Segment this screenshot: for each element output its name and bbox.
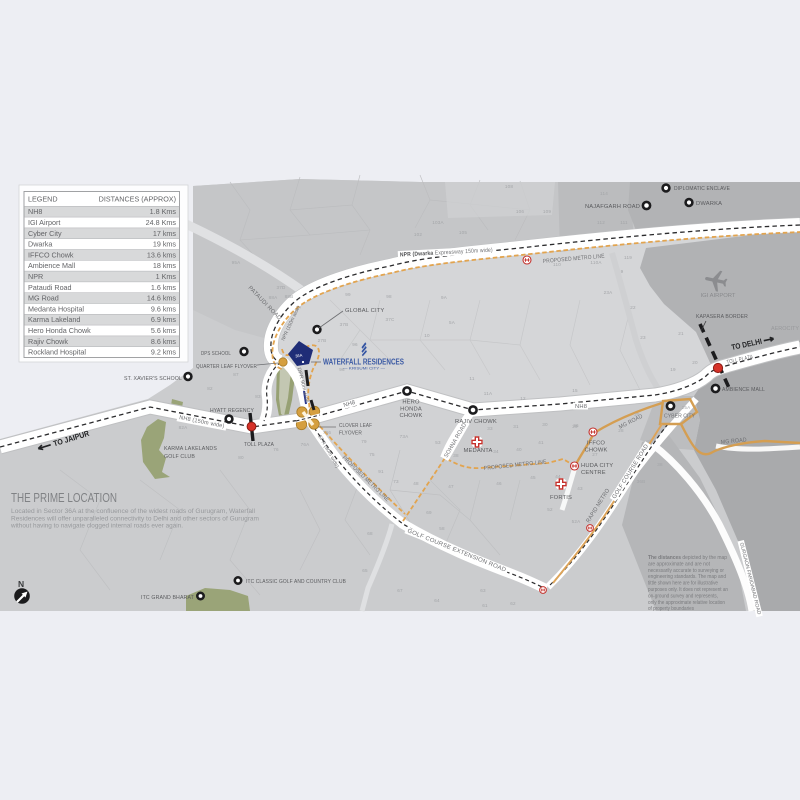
svg-text:N: N [18, 579, 24, 589]
svg-text:9.6 kms: 9.6 kms [151, 304, 177, 313]
svg-text:17 kms: 17 kms [153, 229, 177, 238]
svg-text:LEGEND: LEGEND [28, 195, 58, 204]
svg-text:DISTANCES (APPROX): DISTANCES (APPROX) [99, 195, 176, 204]
svg-text:110: 110 [553, 262, 561, 267]
svg-text:GOLF CLUB: GOLF CLUB [164, 454, 195, 460]
svg-text:HERO: HERO [402, 400, 420, 406]
svg-text:47: 47 [448, 484, 454, 489]
svg-text:119: 119 [624, 255, 632, 260]
svg-text:52: 52 [547, 507, 553, 512]
svg-text:58: 58 [439, 526, 445, 531]
svg-text:CYBER CITY: CYBER CITY [664, 414, 695, 420]
svg-text:Pataudi Road: Pataudi Road [28, 283, 72, 292]
svg-text:Karma Lakeland: Karma Lakeland [28, 315, 80, 324]
svg-text:necessarily accurate to survey: necessarily accurate to surveying or [648, 568, 724, 574]
svg-text:108: 108 [505, 184, 514, 189]
svg-text:14.6 kms: 14.6 kms [147, 294, 177, 303]
svg-text:15: 15 [572, 388, 578, 393]
svg-text:96: 96 [339, 367, 345, 372]
svg-text:Residences will offer unparall: Residences will offer unparalleled conne… [11, 515, 260, 522]
svg-text:AEROCITY: AEROCITY [771, 326, 799, 332]
svg-text:25: 25 [634, 412, 640, 417]
svg-text:19: 19 [670, 367, 676, 372]
svg-text:IFFCO Chowk: IFFCO Chowk [28, 250, 74, 259]
svg-text:11: 11 [469, 376, 474, 381]
svg-text:76A: 76A [301, 442, 311, 447]
svg-text:6.9 kms: 6.9 kms [151, 315, 177, 324]
svg-text:53: 53 [435, 440, 441, 445]
svg-text:91: 91 [378, 469, 384, 474]
svg-text:Ambience Mall: Ambience Mall [28, 261, 76, 270]
svg-text:WATERFALL RESIDENCES: WATERFALL RESIDENCES [323, 358, 405, 367]
svg-text:25A: 25A [682, 405, 692, 410]
svg-text:The distances depicted by the: The distances depicted by the map [648, 555, 727, 561]
svg-text:98: 98 [386, 294, 392, 299]
svg-text:ITC GRAND BHARAT: ITC GRAND BHARAT [141, 595, 194, 601]
svg-text:HYATT REGENCY: HYATT REGENCY [210, 408, 254, 414]
svg-text:NPR: NPR [28, 272, 43, 281]
svg-text:62: 62 [510, 601, 516, 606]
svg-text:tittle shown here are for illu: tittle shown here are for illustrative [648, 581, 718, 587]
svg-text:87: 87 [233, 372, 239, 377]
svg-text:46: 46 [496, 481, 502, 486]
svg-text:13.6 kms: 13.6 kms [147, 250, 177, 259]
svg-text:766: 766 [323, 430, 332, 435]
svg-text:9.2 kms: 9.2 kms [151, 348, 177, 357]
svg-text:37C: 37C [385, 317, 395, 322]
svg-text:MEDANTA: MEDANTA [464, 448, 493, 454]
svg-text:88B: 88B [285, 294, 294, 299]
svg-text:FORTIS: FORTIS [550, 495, 572, 501]
svg-text:HONDA: HONDA [400, 406, 422, 412]
svg-text:Rockland Hospital: Rockland Hospital [28, 348, 86, 357]
svg-text:73A: 73A [400, 434, 410, 439]
svg-text:CENTRE: CENTRE [581, 470, 606, 476]
svg-text:76: 76 [273, 447, 279, 452]
svg-text:114: 114 [600, 191, 608, 196]
svg-text:79: 79 [361, 439, 367, 444]
svg-text:96: 96 [352, 342, 358, 347]
svg-text:engineering standards. The map: engineering standards. The map and [648, 574, 726, 580]
svg-text:MG Road: MG Road [28, 294, 59, 303]
svg-text:99: 99 [345, 292, 351, 297]
svg-text:68: 68 [367, 531, 373, 536]
svg-text:82A: 82A [179, 425, 189, 430]
svg-text:112: 112 [597, 220, 605, 225]
svg-text:IGI AIRPORT: IGI AIRPORT [701, 293, 736, 299]
svg-text:RAJIV CHOWK: RAJIV CHOWK [455, 419, 497, 425]
svg-text:11A: 11A [484, 391, 493, 396]
svg-text:GLOBAL CITY: GLOBAL CITY [345, 308, 384, 314]
svg-text:45: 45 [530, 475, 536, 480]
svg-text:— KRISUMI CITY —: — KRISUMI CITY — [343, 367, 386, 371]
svg-text:43: 43 [577, 486, 583, 491]
svg-text:26: 26 [573, 423, 579, 428]
svg-text:IFFCO: IFFCO [587, 441, 605, 447]
svg-text:of property boundaries: of property boundaries [648, 606, 694, 612]
svg-text:30: 30 [542, 422, 548, 427]
svg-text:23A: 23A [604, 290, 614, 295]
svg-text:1.6 kms: 1.6 kms [151, 283, 177, 292]
svg-text:95A: 95A [232, 260, 242, 265]
svg-text:48: 48 [413, 481, 419, 486]
svg-text:105: 105 [459, 230, 468, 235]
svg-text:22: 22 [630, 305, 636, 310]
svg-text:18 kms: 18 kms [153, 261, 177, 270]
svg-text:38: 38 [657, 462, 663, 467]
svg-text:only the approximate relative: only the approximate relative location [648, 600, 725, 606]
svg-text:NH8: NH8 [28, 207, 42, 216]
svg-text:63: 63 [480, 588, 486, 593]
svg-text:75: 75 [369, 452, 375, 457]
svg-text:NAJAFGARH ROAD: NAJAFGARH ROAD [585, 204, 640, 210]
svg-text:DWARKA: DWARKA [696, 201, 722, 207]
svg-text:12: 12 [520, 396, 526, 401]
svg-text:8.6 kms: 8.6 kms [151, 337, 177, 346]
svg-text:64: 64 [434, 598, 440, 603]
svg-text:purposes only. It does not rep: purposes only. It does not represent an [648, 587, 728, 593]
svg-text:40: 40 [516, 447, 522, 452]
svg-text:103A: 103A [432, 220, 444, 225]
svg-text:NH8: NH8 [575, 404, 587, 410]
svg-text:AMBIENCE MALL: AMBIENCE MALL [722, 387, 766, 393]
svg-text:80: 80 [238, 455, 244, 460]
svg-text:Located in Sector 36A at the c: Located in Sector 36A at the confluence … [11, 508, 256, 515]
svg-text:Rajiv Chowk: Rajiv Chowk [28, 337, 68, 346]
svg-text:31: 31 [513, 424, 519, 429]
svg-text:21: 21 [678, 331, 684, 336]
svg-text:73: 73 [393, 479, 399, 484]
svg-text:83: 83 [255, 394, 261, 399]
svg-text:1 Kms: 1 Kms [156, 272, 177, 281]
svg-text:THE PRIME LOCATION: THE PRIME LOCATION [11, 491, 117, 505]
svg-text:102: 102 [414, 232, 423, 237]
svg-text:27B: 27B [318, 338, 327, 343]
svg-text:9A: 9A [441, 295, 448, 300]
svg-text:41: 41 [538, 440, 544, 445]
svg-text:Cyber City: Cyber City [28, 229, 62, 238]
svg-text:QUARTER LEAF FLYOVER: QUARTER LEAF FLYOVER [196, 364, 257, 370]
svg-text:61: 61 [482, 603, 488, 608]
svg-text:28: 28 [618, 428, 624, 433]
svg-text:33: 33 [487, 426, 493, 431]
svg-text:DIPLOMATIC ENCLAVE: DIPLOMATIC ENCLAVE [674, 186, 730, 192]
svg-text:38: 38 [453, 453, 459, 458]
svg-text:HUDA CITY: HUDA CITY [581, 463, 613, 469]
svg-text:5A: 5A [449, 320, 456, 325]
svg-text:82: 82 [207, 386, 213, 391]
svg-text:DPS SCHOOL: DPS SCHOOL [201, 351, 231, 357]
svg-text:CHOWK: CHOWK [400, 413, 423, 419]
svg-text:Hero Honda Chowk: Hero Honda Chowk [28, 326, 91, 335]
svg-text:36B: 36B [637, 479, 646, 484]
svg-text:IGI Airport: IGI Airport [28, 218, 60, 227]
svg-text:106: 106 [516, 209, 525, 214]
svg-text:65: 65 [362, 568, 368, 573]
svg-text:KARMA LAKELANDS: KARMA LAKELANDS [164, 446, 217, 452]
svg-text:67: 67 [397, 588, 403, 593]
svg-text:20: 20 [692, 360, 698, 365]
svg-text:KAPASERA BORDER: KAPASERA BORDER [696, 314, 748, 320]
svg-text:CLOVER LEAF: CLOVER LEAF [339, 423, 372, 429]
svg-text:88A: 88A [269, 295, 279, 300]
svg-text:69: 69 [426, 510, 432, 515]
svg-text:9: 9 [621, 269, 624, 274]
svg-text:52A: 52A [572, 519, 582, 524]
svg-text:10: 10 [424, 333, 430, 338]
svg-text:34: 34 [493, 449, 499, 454]
svg-text:TOLL PLAZA: TOLL PLAZA [244, 442, 274, 448]
svg-text:111: 111 [620, 220, 628, 225]
svg-text:are approximate and are not: are approximate and are not [648, 561, 710, 567]
svg-text:37D: 37D [276, 285, 286, 290]
svg-text:23: 23 [640, 335, 646, 340]
svg-text:without having to navigate clo: without having to navigate clogged inter… [10, 523, 183, 530]
svg-text:5.6 kms: 5.6 kms [151, 326, 177, 335]
svg-text:24.8 Kms: 24.8 Kms [146, 218, 177, 227]
svg-text:Dwarka: Dwarka [28, 240, 52, 249]
svg-text:37B: 37B [340, 322, 349, 327]
svg-text:109: 109 [543, 209, 552, 214]
svg-text:110A: 110A [590, 260, 602, 265]
svg-text:27: 27 [592, 452, 598, 457]
svg-text:Medanta Hospital: Medanta Hospital [28, 304, 84, 313]
svg-text:FLYOVER: FLYOVER [339, 431, 362, 437]
svg-text:ITC CLASSIC GOLF AND COUNTRY C: ITC CLASSIC GOLF AND COUNTRY CLUB [246, 579, 346, 585]
svg-text:44: 44 [555, 474, 561, 479]
svg-text:1.8 Kms: 1.8 Kms [150, 207, 177, 216]
svg-text:on-ground survey and represent: on-ground survey and represents, [648, 593, 718, 599]
svg-text:19 kms: 19 kms [153, 240, 177, 249]
svg-text:ST. XAVIER'S SCHOOL: ST. XAVIER'S SCHOOL [124, 376, 183, 382]
